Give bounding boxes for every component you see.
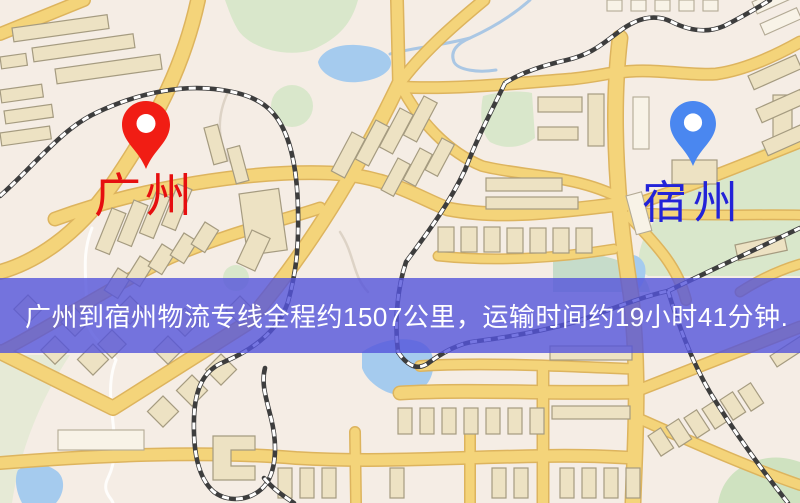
route-info-banner: 广州到宿州物流专线全程约1507公里，运输时间约19小时41分钟.: [0, 278, 800, 353]
buildings-shape: [204, 124, 227, 164]
buildings-shape: [530, 408, 544, 434]
buildings-shape: [679, 0, 694, 11]
buildings-shape: [0, 84, 43, 103]
pin-hole: [137, 114, 156, 133]
buildings-shape: [552, 406, 630, 419]
buildings-shape: [530, 228, 546, 253]
destination-city-label: 宿州: [631, 181, 755, 226]
buildings-shape: [514, 468, 528, 498]
buildings-shape: [655, 0, 670, 11]
buildings-shape: [576, 228, 592, 253]
buildings-shape: [442, 408, 456, 434]
buildings-shape: [508, 408, 522, 434]
buildings-shape: [461, 227, 477, 252]
buildings-shape: [464, 408, 478, 434]
buildings-shape: [0, 126, 51, 146]
buildings-shape: [58, 430, 144, 450]
buildings-shape: [582, 468, 596, 498]
park-areas-shape: [225, 0, 358, 53]
buildings-shape: [631, 0, 646, 11]
buildings-shape: [538, 127, 578, 140]
buildings-shape: [588, 94, 604, 146]
buildings-shape: [486, 178, 562, 191]
buildings-shape: [32, 34, 135, 62]
roads-shape: [420, 364, 633, 369]
buildings-shape: [4, 104, 53, 124]
origin-pin-icon: [121, 100, 171, 170]
water-areas-shape: [453, 38, 496, 71]
map-screenshot: 广州到宿州物流专线全程约1507公里，运输时间约19小时41分钟. 广州 宿州: [0, 0, 800, 503]
buildings-shape: [626, 468, 640, 498]
buildings-shape: [553, 228, 569, 253]
origin-pin[interactable]: [121, 100, 171, 170]
buildings-shape: [560, 468, 574, 498]
buildings-shape: [492, 468, 506, 498]
buildings-shape: [398, 408, 412, 434]
destination-pin-icon: [669, 100, 717, 167]
buildings-shape: [390, 468, 404, 498]
roads-shape: [397, 0, 399, 84]
buildings-shape: [760, 8, 800, 35]
lake-top: [318, 45, 391, 82]
buildings-shape: [703, 0, 718, 11]
buildings-shape: [604, 468, 618, 498]
buildings-shape: [438, 227, 454, 252]
route-info-text: 广州到宿州物流专线全程约1507公里，运输时间约19小时41分钟.: [25, 297, 788, 334]
buildings-shape: [607, 0, 622, 11]
buildings-shape: [484, 227, 500, 252]
destination-pin[interactable]: [669, 100, 717, 167]
buildings-shape: [420, 408, 434, 434]
buildings-shape: [322, 468, 336, 498]
roads-shape: [355, 432, 356, 503]
roads-shape: [400, 391, 634, 393]
pin-hole: [684, 113, 702, 131]
buildings-shape: [486, 408, 500, 434]
pin-body: [670, 101, 716, 166]
buildings-shape: [633, 97, 649, 149]
buildings-shape: [486, 197, 578, 209]
map-background: [0, 0, 800, 503]
buildings-shape: [300, 468, 314, 498]
pin-body: [122, 101, 170, 169]
buildings-shape: [538, 97, 582, 112]
buildings-shape: [55, 54, 162, 84]
buildings-shape: [0, 53, 27, 69]
buildings-shape: [507, 228, 523, 253]
buildings-shape: [147, 396, 178, 427]
lake-bottom-left: [16, 465, 63, 503]
origin-city-label: 广州: [83, 174, 207, 221]
